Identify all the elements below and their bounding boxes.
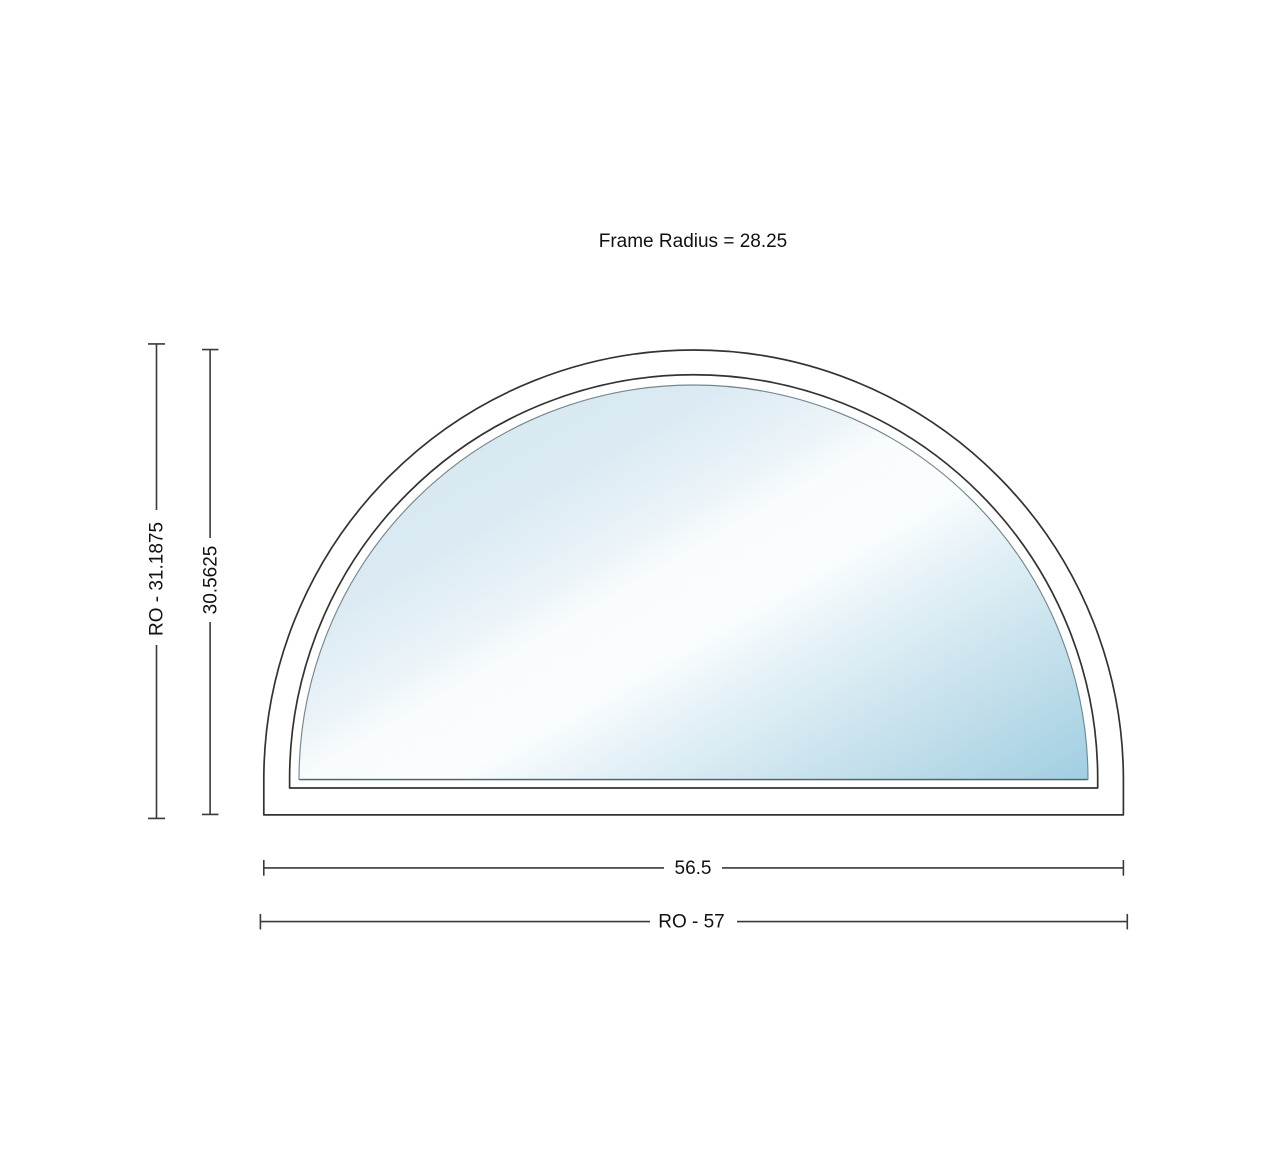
svg-text:RO - 57: RO - 57 <box>658 911 725 932</box>
svg-text:RO - 31.1875: RO - 31.1875 <box>147 522 168 636</box>
svg-text:56.5: 56.5 <box>675 858 712 879</box>
svg-text:30.5625: 30.5625 <box>201 546 222 615</box>
svg-text:Frame Radius = 28.25: Frame Radius = 28.25 <box>599 231 788 252</box>
